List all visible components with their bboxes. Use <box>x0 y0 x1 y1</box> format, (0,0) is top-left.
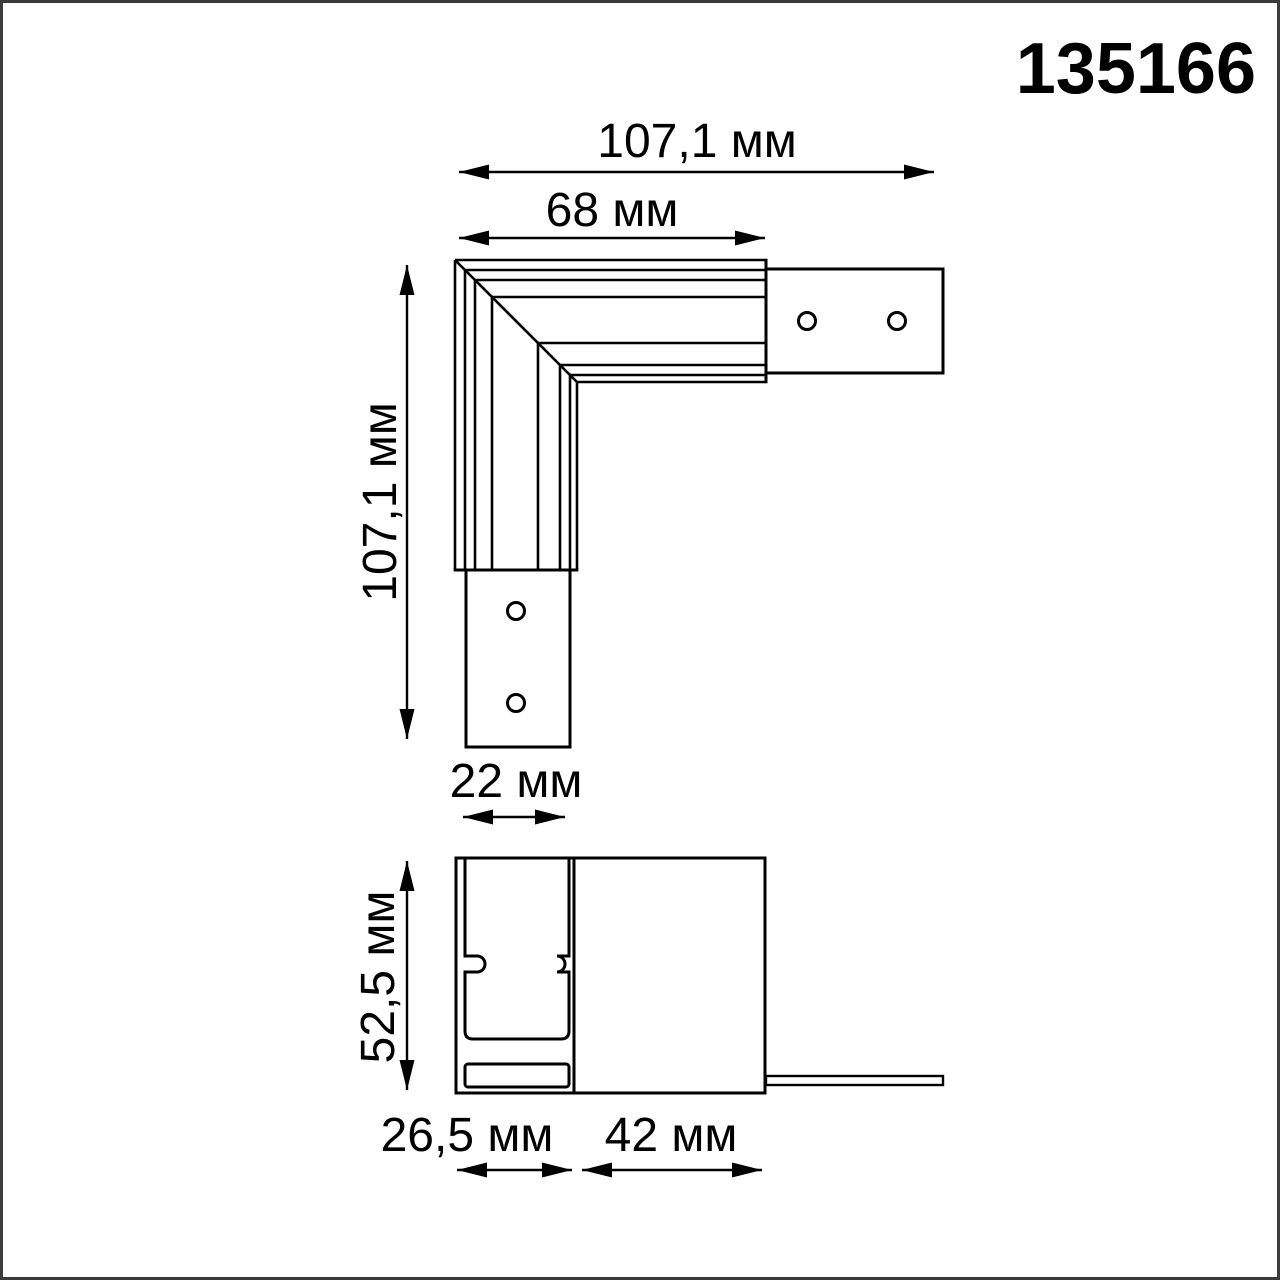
dim-label-section-left-width: 26,5 мм <box>381 1109 554 1162</box>
connector-plate-bottom <box>466 570 570 747</box>
top-view <box>454 259 943 747</box>
screw-hole <box>889 313 906 330</box>
channel-slot <box>465 1064 569 1087</box>
section-outline <box>456 858 765 1093</box>
dim-label-track-width: 68 мм <box>546 184 679 237</box>
dim-label-section-right-width: 42 мм <box>605 1109 738 1162</box>
screw-hole <box>508 603 525 620</box>
screw-hole <box>799 313 816 330</box>
dim-label-overall-width: 107,1 мм <box>597 115 796 168</box>
track-channel <box>465 859 569 1039</box>
drawing-sheet: 107,1 мм 68 мм 107,1 мм 22 мм 52,5 мм 26… <box>0 0 1280 1280</box>
side-tab <box>766 1076 943 1085</box>
part-number: 135166 <box>1016 29 1256 109</box>
dimensions <box>407 172 934 1170</box>
technical-drawing: 107,1 мм 68 мм 107,1 мм 22 мм 52,5 мм 26… <box>3 3 1277 1277</box>
corner-track-profile <box>454 259 766 570</box>
connector-plate-right <box>766 269 943 373</box>
plate-outline <box>466 570 570 747</box>
screw-hole <box>508 695 525 712</box>
section-view <box>456 858 943 1093</box>
dim-label-overall-height: 107,1 мм <box>354 402 407 601</box>
dim-label-plate-width: 22 мм <box>450 755 583 808</box>
dim-label-section-height: 52,5 мм <box>352 891 405 1064</box>
plate-outline <box>766 269 943 373</box>
mitre-diagonal-line <box>455 260 577 382</box>
